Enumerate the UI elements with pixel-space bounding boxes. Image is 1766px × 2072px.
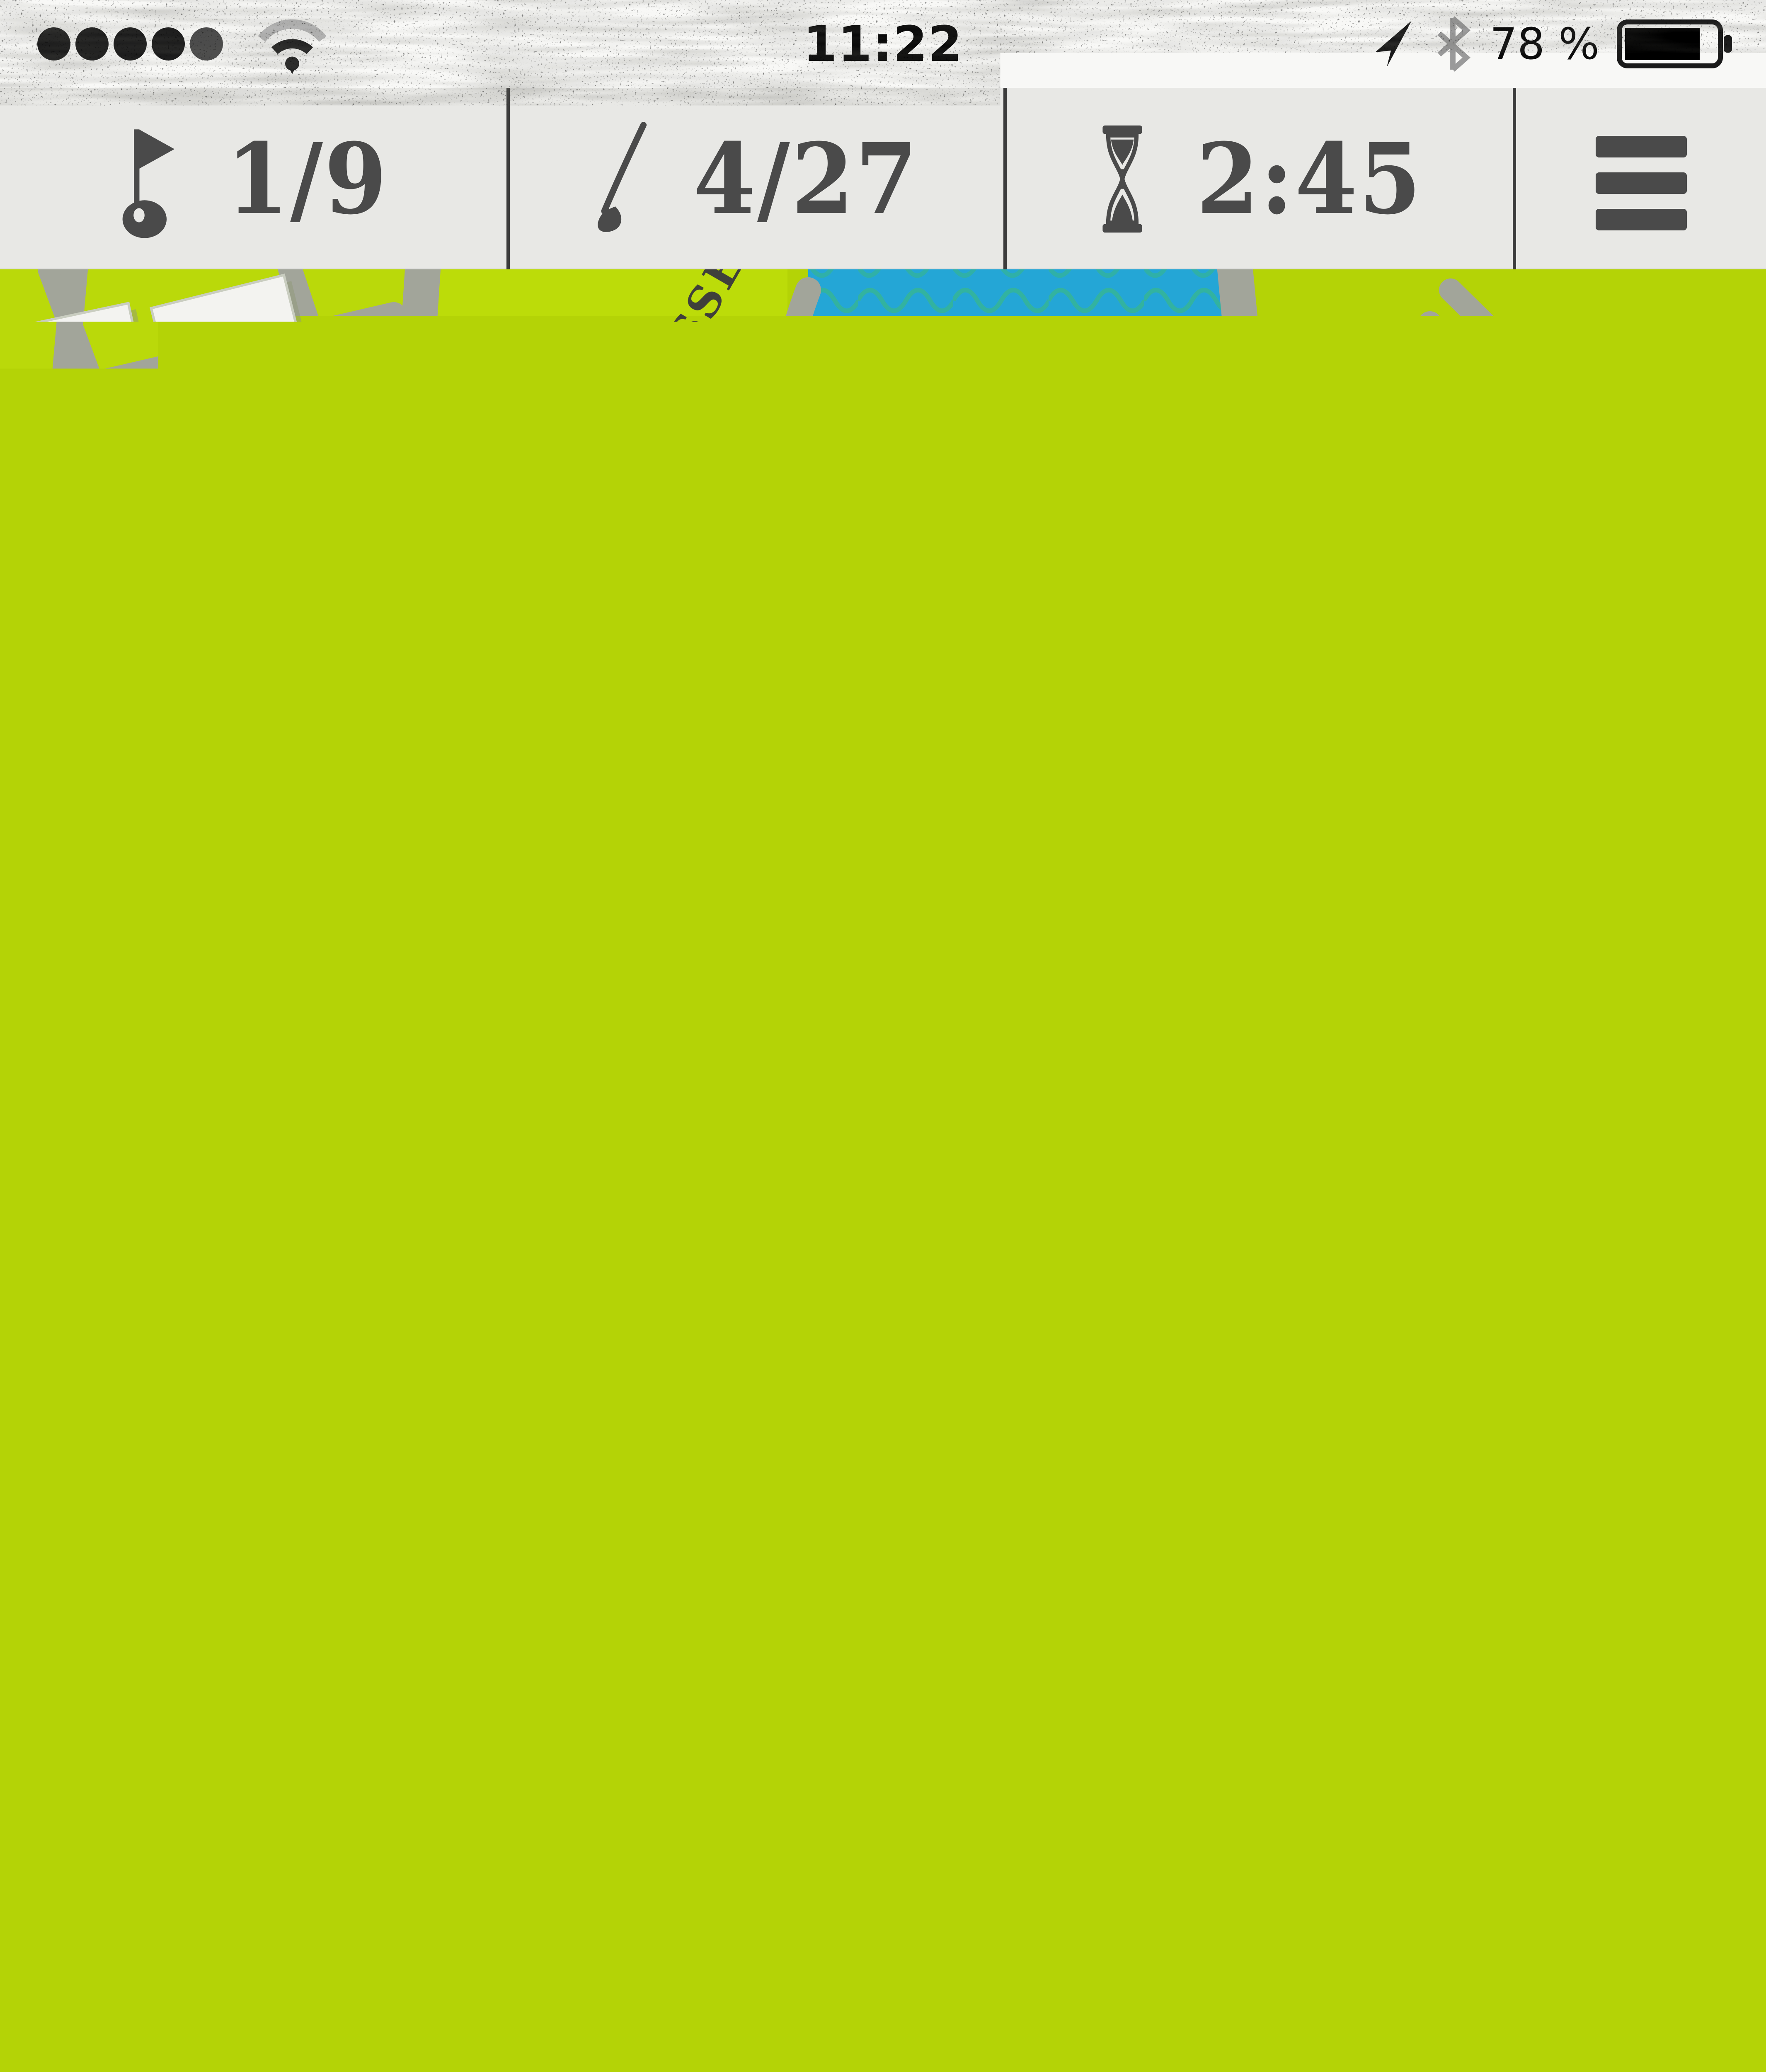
scorecard-header: 1/9 4/27 2:45 — [0, 88, 1766, 270]
hole-counter: 1/9 — [0, 88, 510, 270]
stroke-counter-value: 4/27 — [693, 122, 919, 236]
golf-club-icon — [584, 117, 654, 241]
hole-counter-value: 1/9 — [226, 122, 388, 236]
hole-flag-icon — [111, 119, 190, 239]
menu-button[interactable] — [1516, 88, 1766, 270]
hamburger-menu-icon — [1592, 121, 1691, 237]
status-bar: 11:22 78 % — [0, 0, 1766, 88]
aim-target-ring[interactable] — [1272, 1380, 1340, 1448]
map-surface[interactable]: GASSE STORCHENGASSE IN GASSEN ANKENGASSE… — [0, 269, 1766, 2072]
city-name-label: Zürich — [376, 1530, 804, 1677]
street-label: Karlstu — [1230, 890, 1372, 935]
location-arrow-icon — [1370, 19, 1416, 69]
hourglass-icon — [1087, 117, 1158, 241]
city-map: GASSE STORCHENGASSE IN GASSEN ANKENGASSE… — [0, 269, 1766, 2072]
tram-route-label: 17 — [1542, 1667, 1583, 1702]
timer: 2:45 — [1007, 88, 1516, 270]
battery-percent-label: 78 % — [1490, 19, 1599, 69]
city-name: Zürich — [376, 1530, 804, 1677]
battery-icon — [1617, 17, 1737, 71]
bluetooth-icon — [1433, 13, 1473, 75]
timer-value: 2:45 — [1197, 122, 1423, 236]
stroke-counter: 4/27 — [510, 88, 1007, 270]
